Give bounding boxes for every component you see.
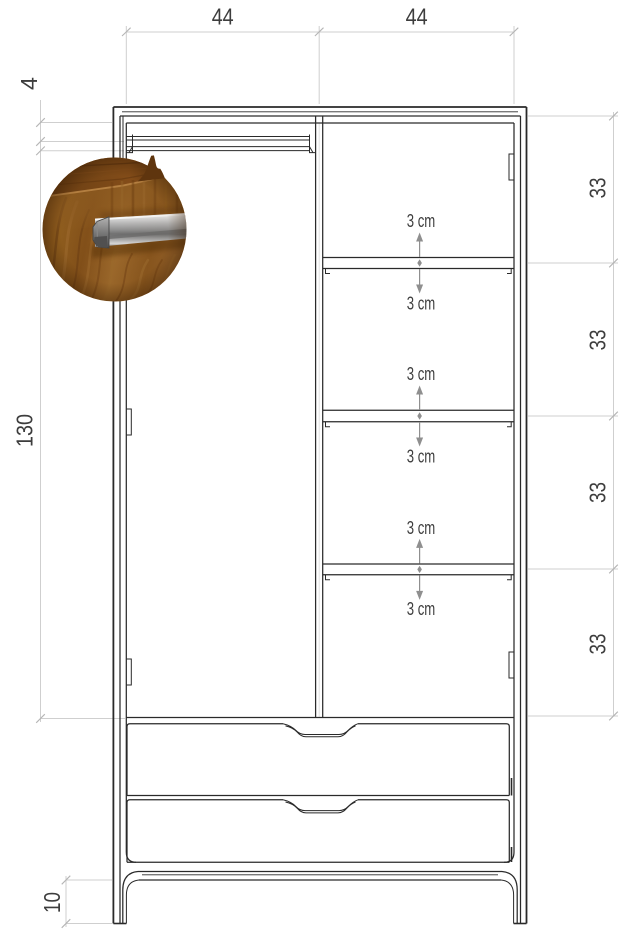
svg-text:3 cm: 3 cm	[407, 447, 436, 467]
svg-text:3 cm: 3 cm	[407, 294, 436, 314]
svg-text:10: 10	[39, 892, 65, 913]
svg-text:44: 44	[212, 3, 234, 29]
svg-text:33: 33	[584, 330, 610, 351]
svg-text:3 cm: 3 cm	[407, 364, 436, 384]
svg-text:3 cm: 3 cm	[407, 518, 436, 538]
svg-text:33: 33	[584, 634, 610, 655]
svg-text:33: 33	[584, 482, 610, 503]
svg-text:3 cm: 3 cm	[407, 599, 436, 619]
svg-text:33: 33	[584, 178, 610, 199]
svg-text:130: 130	[11, 414, 37, 447]
svg-text:4: 4	[16, 77, 42, 90]
svg-text:3 cm: 3 cm	[407, 211, 436, 231]
svg-text:44: 44	[406, 3, 428, 29]
